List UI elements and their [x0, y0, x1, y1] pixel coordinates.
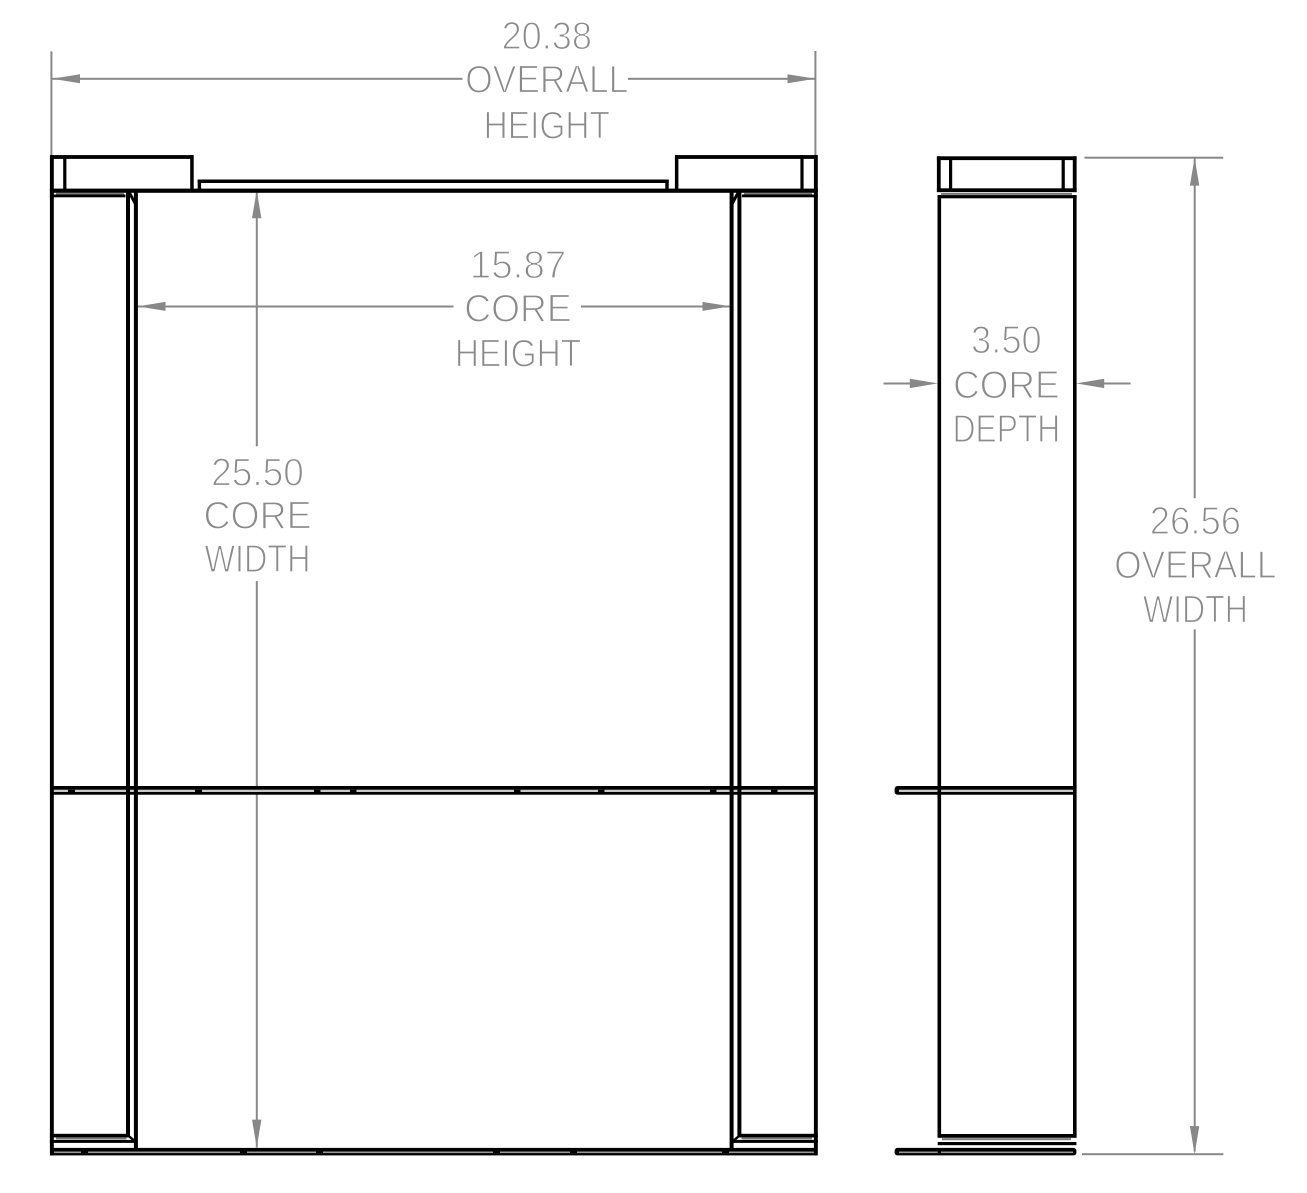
- svg-text:20.38: 20.38: [502, 15, 592, 58]
- svg-text:HEIGHT: HEIGHT: [455, 332, 581, 375]
- svg-text:DEPTH: DEPTH: [953, 408, 1061, 451]
- svg-text:3.50: 3.50: [971, 319, 1042, 362]
- svg-text:CORE: CORE: [464, 288, 571, 331]
- svg-text:26.56: 26.56: [1150, 500, 1241, 543]
- svg-text:CORE: CORE: [953, 364, 1060, 407]
- svg-text:25.50: 25.50: [211, 452, 304, 495]
- svg-text:OVERALL: OVERALL: [465, 59, 628, 102]
- svg-text:WIDTH: WIDTH: [204, 538, 310, 581]
- svg-text:CORE: CORE: [204, 495, 312, 538]
- svg-text:HEIGHT: HEIGHT: [484, 104, 610, 147]
- svg-text:WIDTH: WIDTH: [1143, 588, 1248, 631]
- svg-text:OVERALL: OVERALL: [1114, 544, 1276, 587]
- svg-text:15.87: 15.87: [470, 244, 567, 287]
